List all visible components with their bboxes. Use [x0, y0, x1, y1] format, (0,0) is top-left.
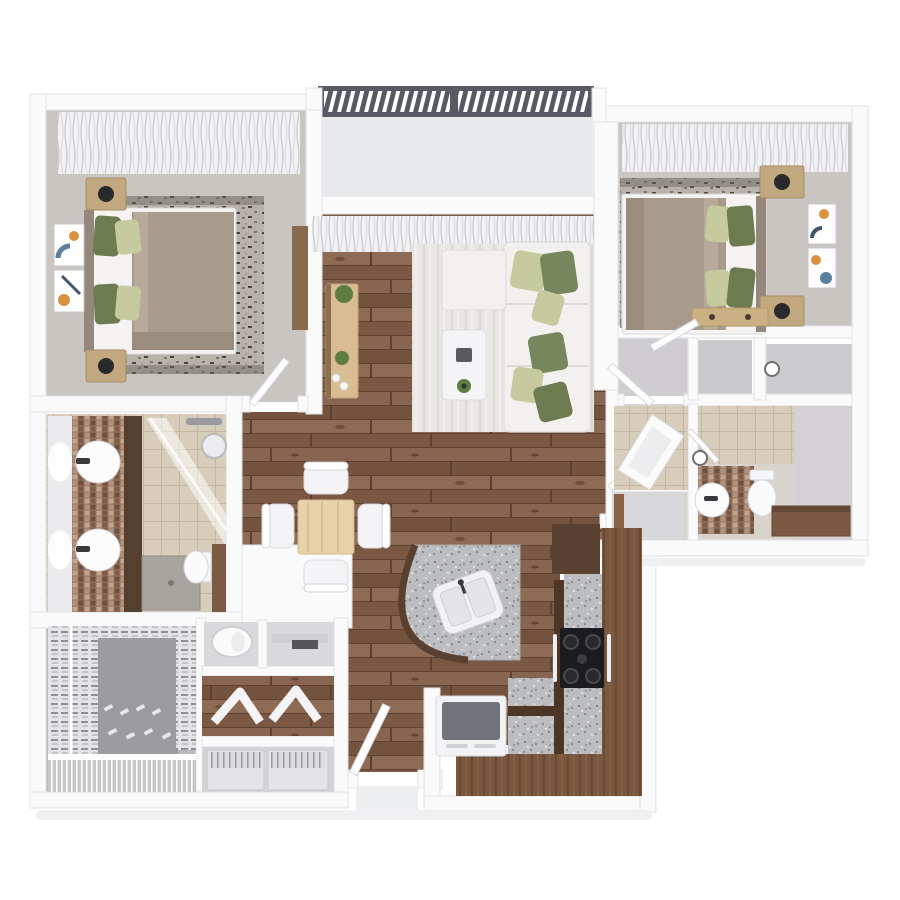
art-shape-orange-3 — [819, 209, 829, 219]
closet-clothes-right — [176, 626, 196, 750]
bath1-toilet-partition — [212, 544, 226, 612]
chair-left-back — [262, 504, 270, 548]
water-heater-cap — [231, 632, 245, 652]
wall-bath2-tub-divider — [688, 404, 698, 540]
wall-kitchen-bottom — [424, 796, 656, 812]
wall-closets-bath2-b — [684, 394, 852, 406]
bed2-lamp-top — [774, 174, 790, 190]
chair-right-back — [382, 504, 390, 548]
wall-left — [30, 94, 46, 808]
entry-landing — [356, 786, 418, 810]
wall-window-living — [306, 196, 606, 214]
closet-1-floor — [690, 340, 752, 394]
bed2-pillow-sage-bottom — [726, 267, 756, 309]
balcony-floor — [322, 114, 594, 198]
wall-bedroom1-bottom-a — [30, 396, 250, 412]
wall-living-bedroom2-divider — [594, 122, 618, 390]
burner-2 — [586, 635, 600, 649]
art-shape-blue-2 — [820, 272, 832, 284]
bath1-toilet-bowl — [184, 551, 208, 583]
art-frame-2 — [54, 270, 84, 312]
dining-table — [298, 500, 354, 554]
wall-bath1-right — [226, 396, 242, 628]
utility-closet — [202, 622, 334, 792]
bath2-cabinet-edge — [772, 506, 850, 512]
utility-c-floor — [202, 676, 334, 736]
walk-in-closet — [48, 626, 196, 792]
bath1-mirror-reflection-1 — [48, 442, 72, 482]
bedroom1-rug-border-bottom — [126, 365, 264, 374]
bed2-pillow-sage-top — [726, 205, 755, 247]
entry-wood-floor — [348, 620, 424, 772]
art-shape-orange-2 — [58, 294, 70, 306]
fridge-handle-1 — [446, 744, 468, 748]
bath1-shower-head — [202, 434, 226, 458]
tv-console-edge — [326, 284, 331, 398]
wall-utility-shelf-a — [202, 666, 334, 676]
closet-inner-floor — [98, 636, 178, 758]
bedroom1-curtains — [58, 112, 300, 174]
bed2-lamp-bottom — [774, 303, 790, 319]
console-plant-2 — [335, 351, 349, 365]
art-shape-orange-4 — [811, 255, 821, 265]
kitchen-outer-band-bottom — [456, 754, 642, 796]
bed2-blanket-foot — [626, 198, 644, 330]
wall-closets-bath2-a — [618, 394, 624, 406]
fridge-handle-2 — [474, 744, 496, 748]
sofa-pillow-2 — [539, 250, 579, 296]
kitchen-inner-edge-h — [508, 706, 556, 716]
bed2-foot-bench — [692, 308, 768, 326]
fridge-top — [442, 702, 500, 740]
wall-bedroom1-living-divider — [306, 110, 322, 414]
bedroom1-rug-border-top — [126, 196, 264, 205]
railing-center-post — [450, 86, 458, 117]
bench-knob-1 — [709, 314, 715, 320]
bed1-blanket-foot — [132, 332, 234, 350]
kitchen-upper-cabinet — [552, 524, 600, 574]
balcony — [318, 86, 594, 117]
bath1-faucet-1 — [76, 458, 90, 464]
floor-plan-image — [0, 0, 900, 900]
art-shape-orange — [69, 231, 79, 241]
oven-handle-left — [553, 634, 557, 682]
console-decor-ball-1 — [332, 374, 340, 382]
wall-utility-divider-ab — [258, 620, 267, 668]
wall-utility-shelf-b — [202, 736, 334, 747]
bathroom-1 — [48, 416, 226, 612]
sofa-ottoman — [442, 250, 506, 310]
burner-center-knob — [577, 654, 587, 664]
washer-grill — [210, 752, 261, 768]
bath1-tall-cabinet — [124, 416, 142, 612]
wall-utility-right — [334, 618, 348, 808]
bed1-lamp-bottom — [98, 358, 114, 374]
oven-handle-right — [607, 634, 611, 682]
wall-top-left — [30, 94, 308, 110]
wall-bedroom1-bottom-b — [298, 396, 308, 412]
burner-3 — [564, 669, 578, 683]
utility-shelf-item — [292, 640, 318, 649]
console-plant-1 — [335, 285, 353, 303]
burner-4 — [586, 669, 600, 683]
bench-knob-2 — [745, 314, 751, 320]
bath1-drain — [168, 580, 174, 586]
bath2-faucet — [704, 496, 718, 501]
wall-closet-divider-1 — [688, 338, 698, 400]
wall-bottom-left — [30, 792, 348, 808]
wall-top-right — [600, 106, 868, 122]
dryer-grill — [271, 752, 325, 768]
bedroom1-dresser — [292, 226, 308, 330]
floor-plan-svg — [0, 0, 900, 900]
sofa-pillow-4 — [527, 331, 569, 375]
bedroom2-curtains — [622, 124, 848, 172]
bedroom2-rug-border-top — [620, 178, 762, 187]
chair-top-back — [304, 462, 348, 470]
coffee-table-plant-pot — [461, 383, 466, 388]
drop-shadow-bottom — [36, 810, 652, 820]
closet-wire-shelf — [48, 756, 196, 792]
closet-clothes-top — [98, 626, 178, 638]
closet2-wall-clock — [765, 362, 779, 376]
bathroom-2 — [612, 406, 852, 540]
bed1-pillow-light-bottom — [115, 285, 142, 321]
bath1-mirror-reflection-2 — [48, 530, 72, 570]
burner-1 — [564, 635, 578, 649]
console-decor-ball-2 — [340, 382, 348, 390]
bed1-headboard — [84, 210, 94, 352]
bath2-wall-clock — [693, 451, 707, 465]
wall-right — [852, 106, 868, 556]
bath2-toilet-tank — [750, 470, 774, 480]
coffee-table-tray — [456, 348, 472, 362]
bath1-shower-arm — [186, 418, 222, 425]
chair-bottom-back — [304, 584, 348, 592]
bed1-pillow-light-top — [114, 219, 141, 255]
bath1-faucet-2 — [76, 546, 90, 552]
bed1-lamp-top — [98, 186, 114, 202]
closet-shelf-edge — [48, 754, 196, 760]
